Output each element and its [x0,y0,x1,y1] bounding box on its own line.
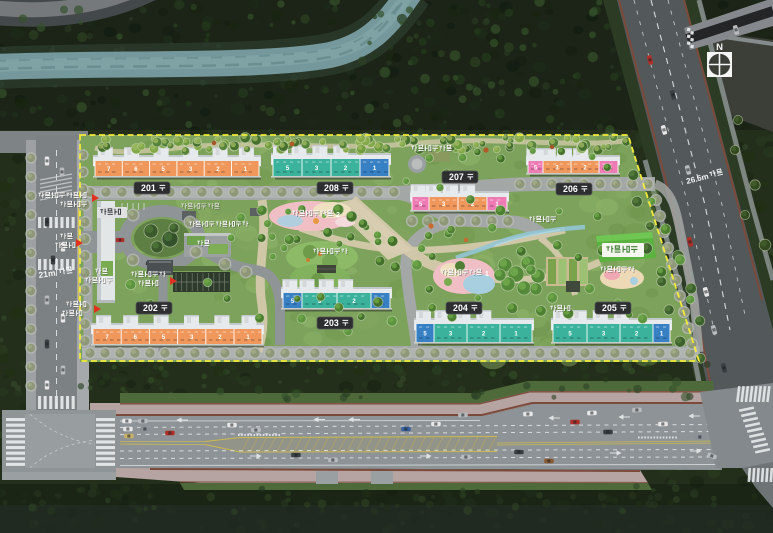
svg-text:203: 203 [324,318,339,328]
svg-text:N: N [716,42,723,53]
svg-text:2: 2 [336,212,340,219]
svg-text:206: 206 [563,184,578,194]
svg-text:208: 208 [324,183,339,193]
svg-text:205: 205 [602,303,617,313]
svg-text:201: 201 [141,183,156,193]
svg-text:202: 202 [143,303,158,313]
svg-text:1: 1 [485,271,489,278]
svg-text:207: 207 [449,172,464,182]
svg-text:204: 204 [453,303,468,313]
